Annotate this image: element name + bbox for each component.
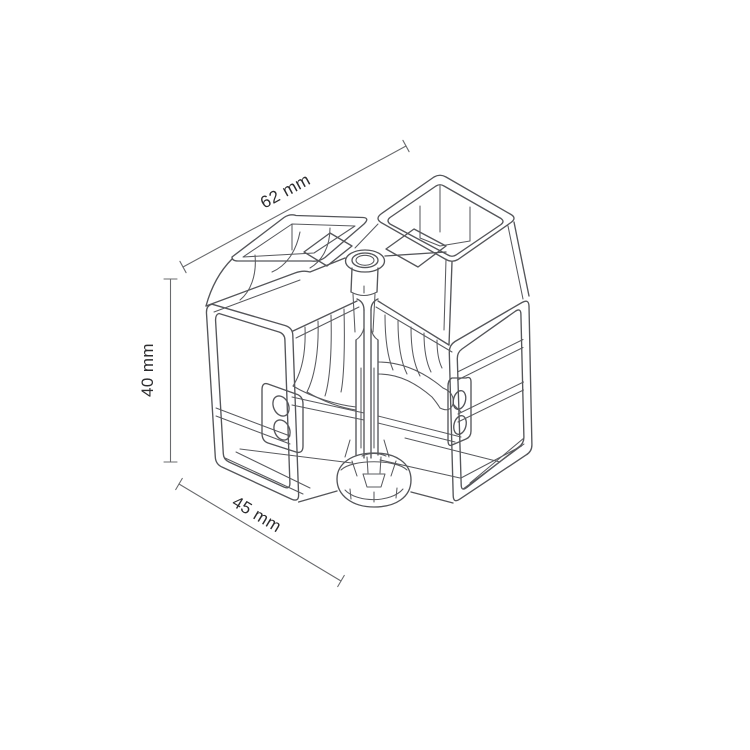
dimension-62mm: 62 mm xyxy=(180,140,409,272)
lattice-hole xyxy=(386,229,446,267)
dimension-tick xyxy=(180,261,186,272)
dimension-label-45mm: 45 mm xyxy=(229,492,285,536)
right-socket-frame xyxy=(449,301,532,501)
knob-foot xyxy=(337,453,411,507)
dimension-line-45 xyxy=(179,484,341,581)
grommet xyxy=(346,250,385,332)
tab-hole xyxy=(451,389,467,410)
connector-body xyxy=(206,175,532,507)
dimension-tick xyxy=(176,478,183,489)
dimension-40mm: 40 mm xyxy=(138,279,177,462)
dimension-45mm: 45 mm xyxy=(176,478,345,586)
dimension-tick xyxy=(338,575,345,586)
tab-hole xyxy=(270,393,292,418)
dimension-tick xyxy=(403,140,409,151)
center-post xyxy=(345,310,389,458)
mid-rails xyxy=(292,397,461,442)
dimension-label-40mm: 40 mm xyxy=(138,343,157,397)
tab-hole xyxy=(271,417,293,442)
connector-dimension-drawing: 62 mm 40 mm 45 mm xyxy=(0,0,750,750)
technical-drawing-page: 62 mm 40 mm 45 mm xyxy=(0,0,750,750)
far-box-right xyxy=(378,175,529,345)
dimension-label-62mm: 62 mm xyxy=(257,170,313,212)
